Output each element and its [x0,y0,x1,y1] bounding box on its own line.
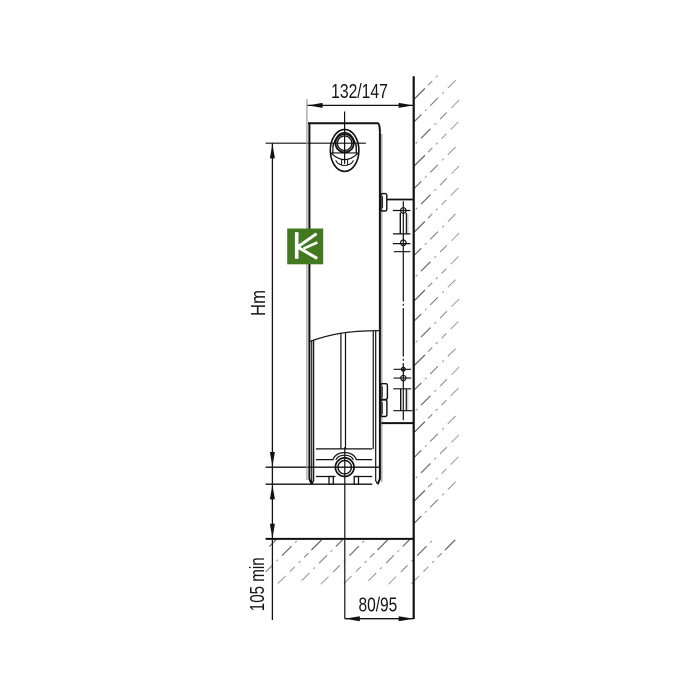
svg-text:80/95: 80/95 [359,593,398,616]
svg-text:105 min: 105 min [246,557,269,611]
svg-text:132/147: 132/147 [331,80,388,103]
svg-text:Hm: Hm [247,290,270,316]
